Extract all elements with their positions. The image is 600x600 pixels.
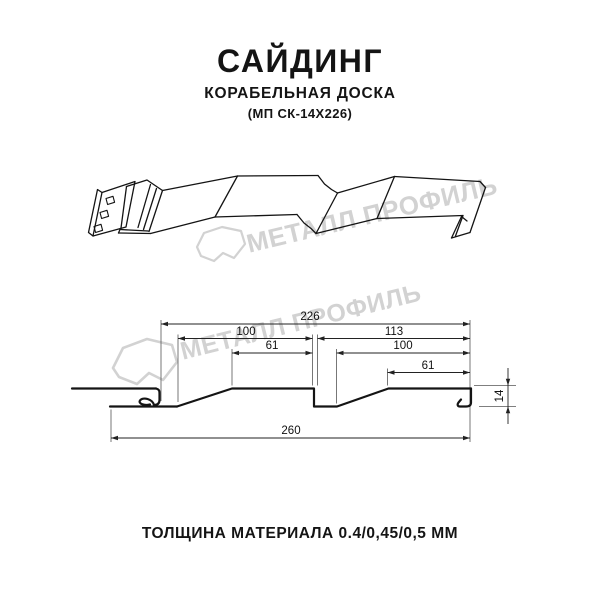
dim-label-226: 226 bbox=[300, 311, 319, 323]
dim-label-113: 113 bbox=[385, 326, 403, 338]
header-block: САЙДИНГ КОРАБЕЛЬНАЯ ДОСКА (МП СК-14Х226) bbox=[0, 44, 600, 121]
dim-label-100-right: 100 bbox=[393, 340, 412, 352]
dim-label-61-right: 61 bbox=[422, 360, 435, 372]
dimension-lines bbox=[111, 324, 508, 438]
product-code: (МП СК-14Х226) bbox=[0, 106, 600, 121]
page-title: САЙДИНГ bbox=[0, 44, 600, 78]
material-thickness-note: ТОЛЩИНА МАТЕРИАЛА 0.4/0,45/0,5 ММ bbox=[0, 525, 600, 543]
page-subtitle: КОРАБЕЛЬНАЯ ДОСКА bbox=[0, 85, 600, 103]
dim-label-61-left: 61 bbox=[266, 340, 279, 352]
dim-label-260: 260 bbox=[281, 425, 300, 437]
watermark-logo-2 bbox=[113, 339, 177, 384]
cross-section-profile bbox=[72, 389, 471, 407]
siding-spec-sheet: САЙДИНГ КОРАБЕЛЬНАЯ ДОСКА (МП СК-14Х226)… bbox=[0, 0, 600, 600]
dimension-arrows bbox=[111, 322, 510, 440]
dim-label-14: 14 bbox=[494, 390, 506, 403]
watermark-logo-1 bbox=[197, 227, 245, 261]
dim-label-100-left: 100 bbox=[236, 326, 255, 338]
profile-3d-sketch bbox=[89, 176, 486, 239]
